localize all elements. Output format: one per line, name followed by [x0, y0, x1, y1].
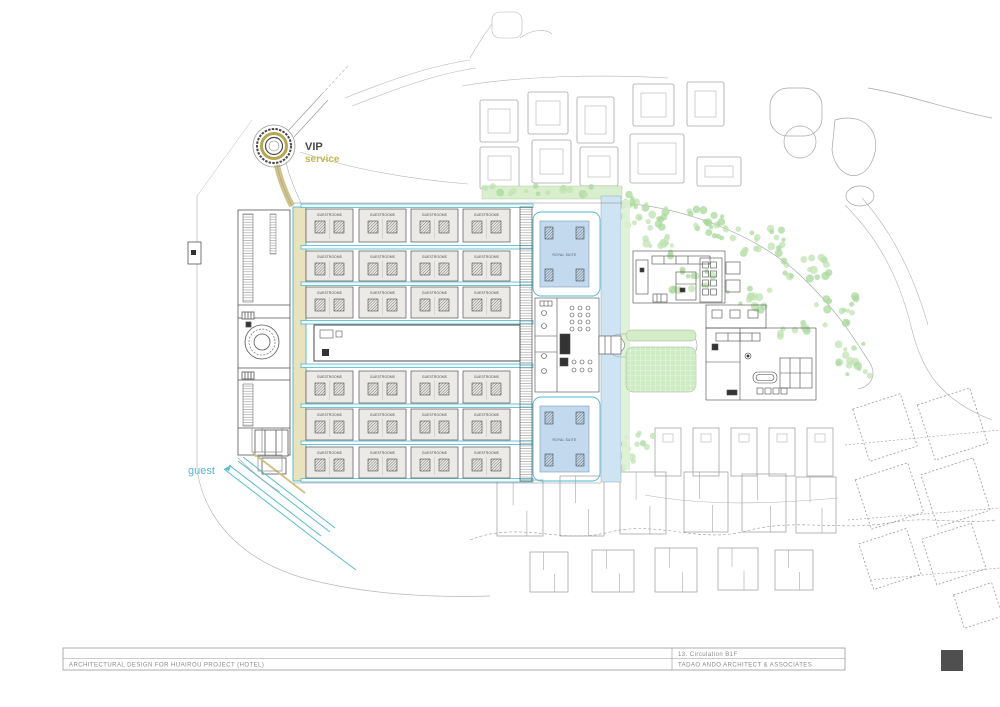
- tree: [846, 309, 850, 313]
- tree: [821, 272, 829, 280]
- courtyard-hatch: [491, 459, 501, 471]
- tree: [545, 190, 550, 195]
- tree: [705, 229, 712, 236]
- tree: [632, 220, 637, 225]
- tree: [781, 258, 788, 265]
- guestroom-label: GUESTROOMS: [474, 213, 499, 217]
- tree: [668, 250, 673, 255]
- tree: [736, 226, 742, 232]
- tree: [720, 214, 724, 218]
- tree: [723, 226, 729, 232]
- context-structure: [492, 12, 522, 38]
- tree: [823, 305, 831, 313]
- context-building: [630, 134, 684, 183]
- stream-dashed-line: [470, 520, 995, 540]
- tree: [769, 230, 774, 235]
- tree: [688, 211, 694, 217]
- context-building: [480, 100, 518, 142]
- service-annex: [262, 458, 286, 474]
- courtyard-hatch: [387, 299, 397, 311]
- tree: [777, 330, 784, 337]
- tree: [693, 206, 701, 214]
- road: [301, 321, 533, 325]
- guestroom-block: GUESTROOMS: [359, 371, 406, 403]
- guestroom-block: GUESTROOMS: [463, 409, 510, 440]
- courtyard-hatch: [334, 221, 344, 233]
- guestroom-block: GUESTROOMS: [306, 209, 353, 242]
- tree: [533, 183, 539, 189]
- road: [301, 441, 533, 445]
- table-circle: [578, 327, 582, 331]
- tree: [642, 235, 649, 242]
- courtyard-hatch: [315, 383, 325, 395]
- guestroom-block: GUESTROOMS: [306, 409, 353, 440]
- guestroom-block: GUESTROOMS: [411, 371, 458, 403]
- courtyard-hatch: [334, 383, 344, 395]
- context-road: [520, 31, 552, 38]
- tree: [559, 186, 567, 194]
- table-circle: [586, 313, 590, 317]
- context-house: [655, 548, 697, 592]
- guestroom-label: GUESTROOMS: [474, 451, 499, 455]
- table-circle: [586, 320, 590, 324]
- context-building: [532, 140, 571, 183]
- tree: [693, 223, 698, 228]
- tree: [670, 243, 674, 247]
- guestroom-block: GUESTROOMS: [359, 409, 406, 440]
- central-spine-building: [314, 325, 520, 361]
- parking-strip: [243, 214, 253, 302]
- service-road: [277, 165, 292, 206]
- courtyard-hatch: [315, 421, 325, 433]
- context-blob: [784, 126, 816, 158]
- courtyard-hatch: [420, 299, 430, 311]
- context-house: [592, 550, 634, 592]
- context-road: [868, 88, 992, 118]
- guestroom-label: GUESTROOMS: [422, 375, 447, 379]
- courtyard-hatch: [491, 383, 501, 395]
- tree: [704, 220, 710, 226]
- courtyard-hatch: [368, 221, 378, 233]
- table-circle: [586, 327, 590, 331]
- table-circle: [572, 360, 576, 364]
- courtyard-hatch: [368, 421, 378, 433]
- tree: [846, 362, 853, 369]
- courtyard-hatch: [420, 221, 430, 233]
- table-circle: [580, 360, 584, 364]
- tree: [660, 239, 668, 247]
- courtyard-hatch: [368, 383, 378, 395]
- guestroom-label: GUESTROOMS: [422, 451, 447, 455]
- sheet-title: 13. Circulation B1F: [678, 652, 738, 658]
- tree: [719, 236, 724, 241]
- tree: [640, 440, 646, 446]
- courtyard-hatch: [315, 459, 325, 471]
- guestroom-label: GUESTROOMS: [422, 213, 447, 217]
- tree: [835, 341, 843, 349]
- context-building: [528, 92, 568, 134]
- guestroom-label: GUESTROOMS: [422, 255, 447, 259]
- suite-label: ROYAL SUITE: [552, 438, 576, 442]
- tree: [750, 231, 755, 236]
- tree: [650, 433, 656, 439]
- courtyard-hatch: [472, 263, 482, 275]
- context-ponds-northeast: [770, 88, 992, 206]
- tree: [851, 345, 856, 350]
- guestroom-label: GUESTROOMS: [370, 213, 395, 217]
- context-house: [731, 428, 757, 476]
- road: [301, 404, 533, 408]
- tree: [750, 292, 758, 300]
- courtyard-hatch: [420, 459, 430, 471]
- suite-court-lower: ROYAL SUITE: [533, 397, 600, 481]
- boundary-line: [197, 470, 490, 596]
- courtyard-hatch: [491, 299, 501, 311]
- guestroom-label: GUESTROOMS: [317, 255, 342, 259]
- courtyard-hatch: [420, 263, 430, 275]
- courtyard-hatch: [315, 221, 325, 233]
- project-title: ARCHITECTURAL DESIGN FOR HUAIROU PROJECT…: [69, 663, 264, 669]
- suite-court-upper: ROYAL SUITE: [533, 212, 600, 296]
- tree: [634, 442, 639, 447]
- guestroom-label: GUESTROOMS: [317, 451, 342, 455]
- tree: [838, 308, 845, 315]
- context-road: [862, 198, 928, 325]
- guestroom-label: GUESTROOMS: [370, 255, 395, 259]
- context-building: [480, 147, 519, 189]
- guestroom-label: GUESTROOMS: [370, 291, 395, 295]
- guestroom-block: GUESTROOMS: [359, 447, 406, 478]
- context-house: [497, 480, 543, 536]
- tree: [511, 188, 517, 194]
- road: [301, 246, 533, 250]
- guestroom-block: GUESTROOMS: [306, 371, 353, 403]
- guestroom-block: GUESTROOMS: [463, 447, 510, 478]
- vip-roundabout: [253, 66, 348, 206]
- courtyard-hatch: [315, 263, 325, 275]
- courtyard-hatch: [368, 263, 378, 275]
- courtyard-hatch: [334, 263, 344, 275]
- courtyard-hatch: [491, 263, 501, 275]
- lawn-grid: [626, 347, 696, 392]
- courtyard-hatch: [491, 221, 501, 233]
- courtyard-hatch: [334, 459, 344, 471]
- context-road: [470, 24, 492, 58]
- courtyard-hatch: [420, 421, 430, 433]
- parking-spine: [520, 207, 532, 481]
- context-road: [352, 68, 476, 106]
- context-building: [580, 147, 618, 186]
- context-house: [775, 550, 813, 590]
- guestroom-label: GUESTROOMS: [317, 375, 342, 379]
- context-house: [620, 472, 666, 534]
- guestroom-block: GUESTROOMS: [359, 251, 406, 281]
- guestroom-block: GUESTROOMS: [463, 371, 510, 403]
- courtyard-hatch: [334, 421, 344, 433]
- context-villa: [855, 463, 923, 529]
- context-houses-east-row: [655, 428, 833, 476]
- context-villa: [922, 523, 986, 585]
- guestroom-label: GUESTROOMS: [370, 375, 395, 379]
- tree: [783, 270, 788, 275]
- tree: [711, 212, 718, 219]
- guestroom-block: GUESTROOMS: [463, 251, 510, 281]
- guestroom-block: GUESTROOMS: [463, 209, 510, 242]
- courtyard-hatch: [439, 299, 449, 311]
- courtyard-hatch: [472, 383, 482, 395]
- context-villa: [853, 394, 918, 462]
- tree: [774, 235, 780, 241]
- guestroom-block: GUESTROOMS: [306, 251, 353, 281]
- tree: [709, 272, 717, 280]
- context-villa: [917, 388, 987, 460]
- context-villas-southeast: [845, 388, 1000, 628]
- context-road: [462, 76, 668, 86]
- tree: [730, 235, 737, 242]
- context-buildings-south: [497, 472, 836, 592]
- tree: [849, 302, 854, 307]
- vip-label: VIP: [305, 141, 323, 153]
- table-circle: [588, 368, 592, 372]
- tree: [778, 227, 785, 234]
- tree: [845, 372, 849, 376]
- guestroom-block: GUESTROOMS: [411, 209, 458, 242]
- tree: [566, 187, 573, 194]
- table-circle: [570, 327, 574, 331]
- tree: [688, 285, 695, 292]
- tree: [854, 362, 862, 370]
- courtyard-hatch: [439, 383, 449, 395]
- table-circle: [578, 320, 582, 324]
- tree: [524, 189, 528, 193]
- tree: [704, 282, 710, 288]
- tree: [648, 211, 656, 219]
- context-villa-road: [845, 430, 1000, 445]
- guestroom-block: GUESTROOMS: [306, 287, 353, 318]
- tree: [814, 274, 820, 280]
- table-circle: [586, 306, 590, 310]
- tree: [843, 347, 847, 351]
- suite-label: ROYAL SUITE: [552, 253, 576, 257]
- tree: [800, 324, 807, 331]
- guestroom-block: GUESTROOMS: [411, 447, 458, 478]
- green-strip: [626, 330, 696, 341]
- tree: [753, 246, 759, 252]
- tree: [867, 373, 873, 379]
- tree: [483, 185, 489, 191]
- courtyard-hatch: [387, 263, 397, 275]
- context-house: [560, 476, 604, 536]
- courtyard-hatch: [439, 263, 449, 275]
- courtyard-hatch: [387, 459, 397, 471]
- table-circle: [570, 313, 574, 317]
- context-house: [718, 548, 758, 590]
- tree: [822, 295, 830, 303]
- bridge: [599, 336, 621, 354]
- tree: [647, 225, 653, 231]
- table-circle: [578, 313, 582, 317]
- road: [301, 364, 533, 368]
- tree: [849, 310, 855, 316]
- context-villa-road: [870, 568, 1000, 580]
- context-building: [577, 97, 614, 143]
- courtyard-hatch: [368, 459, 378, 471]
- context-house: [796, 477, 836, 533]
- context-blob: [770, 88, 822, 136]
- context-blob: [832, 118, 876, 176]
- service-label: service: [305, 154, 340, 165]
- courtyard-hatch: [387, 421, 397, 433]
- table-circle: [588, 360, 592, 364]
- context-road: [345, 60, 470, 98]
- tree: [655, 220, 663, 228]
- tree: [496, 189, 504, 197]
- tree: [823, 261, 830, 268]
- tree: [582, 192, 588, 198]
- site-plan-drawing: GUESTROOMSGUESTROOMSGUESTROOMSGUESTROOMS…: [0, 0, 1000, 707]
- context-villa: [859, 528, 921, 589]
- tree: [747, 286, 753, 292]
- tree: [588, 184, 594, 190]
- guestroom-block: GUESTROOMS: [411, 409, 458, 440]
- guestroom-block: GUESTROOMS: [359, 209, 406, 242]
- firm-name: TADAO ANDO ARCHITECT & ASSOCIATES: [678, 663, 812, 669]
- guestroom-block: GUESTROOMS: [359, 287, 406, 318]
- context-house: [530, 552, 568, 592]
- guestroom-block: GUESTROOMS: [411, 251, 458, 281]
- tree: [637, 431, 642, 436]
- table-circle: [572, 368, 576, 372]
- gatehouse-mark: [191, 250, 196, 255]
- context-road: [645, 495, 838, 503]
- context-house: [807, 428, 833, 476]
- road: [301, 479, 533, 483]
- tree: [852, 295, 859, 302]
- tree: [754, 238, 758, 242]
- courtyard-hatch: [387, 383, 397, 395]
- tree: [845, 320, 850, 325]
- table-circle: [570, 320, 574, 324]
- courtyard-hatch: [472, 421, 482, 433]
- tree: [699, 206, 707, 214]
- guestroom-label: GUESTROOMS: [474, 413, 499, 417]
- courtyard-hatch: [439, 221, 449, 233]
- tree: [644, 202, 649, 207]
- clubhouse-roof: [652, 256, 710, 264]
- context-buildings-north: [480, 82, 741, 189]
- road: [301, 282, 533, 286]
- spa-pool: [753, 372, 777, 383]
- context-road: [845, 205, 992, 420]
- table-circle: [570, 306, 574, 310]
- tree: [822, 322, 827, 327]
- courtyard-hatch: [472, 221, 482, 233]
- tree: [806, 274, 814, 282]
- guestroom-block: GUESTROOMS: [411, 287, 458, 318]
- guestroom-label: GUESTROOMS: [474, 255, 499, 259]
- guestroom-label: GUESTROOMS: [422, 413, 447, 417]
- tree: [818, 254, 826, 262]
- courtyard-hatch: [334, 299, 344, 311]
- tree: [776, 245, 782, 251]
- title-block: ARCHITECTURAL DESIGN FOR HUAIROU PROJECT…: [63, 648, 963, 671]
- tree: [742, 247, 749, 254]
- tree: [668, 286, 676, 294]
- courtyard-hatch: [439, 459, 449, 471]
- parking-strip: [270, 214, 276, 254]
- courtyard-hatch: [439, 421, 449, 433]
- context-building: [687, 82, 724, 126]
- tree: [664, 206, 668, 210]
- tree: [680, 270, 685, 275]
- context-house: [655, 428, 681, 476]
- spa-complex: [706, 305, 816, 400]
- architectural-sheet: GUESTROOMSGUESTROOMSGUESTROOMSGUESTROOMS…: [0, 0, 1000, 707]
- parking-strip: [243, 384, 253, 426]
- tree: [861, 342, 865, 346]
- stamp-square: [941, 650, 963, 671]
- tree: [810, 266, 818, 274]
- spa-outline: [706, 328, 816, 400]
- tree: [661, 214, 668, 221]
- guestroom-label: GUESTROOMS: [474, 375, 499, 379]
- courtyard-hatch: [472, 299, 482, 311]
- courtyard-hatch: [387, 221, 397, 233]
- courtyard-hatch: [368, 299, 378, 311]
- context-blob: [846, 186, 874, 206]
- tree: [814, 302, 819, 307]
- guestroom-label: GUESTROOMS: [317, 413, 342, 417]
- context-building: [633, 84, 674, 126]
- guestroom-label: GUESTROOMS: [317, 291, 342, 295]
- courtyard-hatch: [491, 421, 501, 433]
- tree: [536, 191, 541, 196]
- road: [301, 204, 533, 208]
- tree: [800, 256, 807, 263]
- tree: [781, 238, 785, 242]
- courtyard-hatch: [420, 383, 430, 395]
- context-villa: [921, 458, 990, 527]
- guestroom-label: GUESTROOMS: [370, 451, 395, 455]
- tree: [646, 219, 651, 224]
- tree: [489, 185, 493, 189]
- guestroom-label: GUESTROOMS: [370, 413, 395, 417]
- guestroom-label: GUESTROOMS: [474, 291, 499, 295]
- tree: [835, 359, 843, 367]
- guestroom-block: GUESTROOMS: [463, 287, 510, 318]
- tree: [767, 243, 775, 251]
- tree: [863, 369, 868, 374]
- context-house: [769, 428, 795, 476]
- context-building: [697, 157, 741, 186]
- courtyard-hatch: [315, 299, 325, 311]
- tree: [808, 255, 815, 262]
- table-circle: [580, 368, 584, 372]
- tree: [716, 222, 720, 226]
- context-villa: [954, 583, 1000, 629]
- tree: [767, 287, 773, 293]
- table-circle: [578, 306, 582, 310]
- tree: [635, 214, 642, 221]
- courtyard-hatch: [472, 459, 482, 471]
- guest-label: guest: [188, 465, 215, 477]
- context-house: [693, 428, 719, 476]
- tree: [789, 274, 794, 279]
- guestroom-label: GUESTROOMS: [422, 291, 447, 295]
- guestroom-block: GUESTROOMS: [306, 447, 353, 478]
- guestroom-label: GUESTROOMS: [317, 213, 342, 217]
- tree: [686, 274, 691, 279]
